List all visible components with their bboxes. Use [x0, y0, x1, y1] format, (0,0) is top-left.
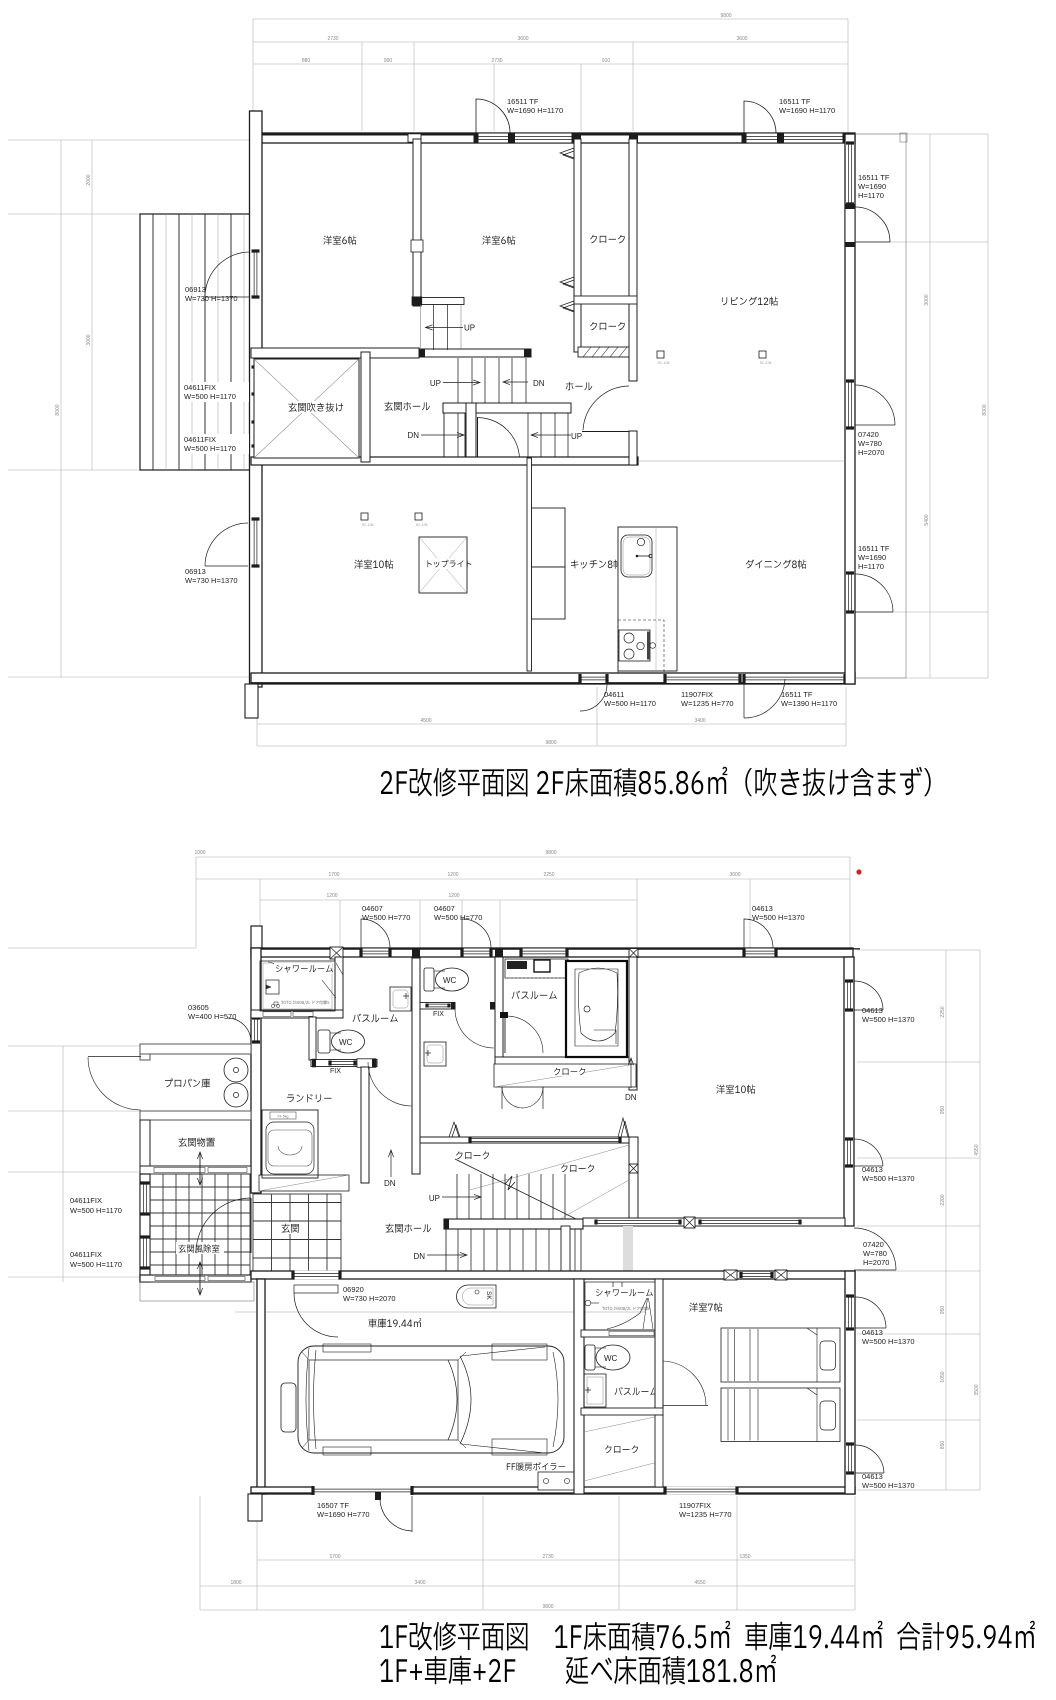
svg-text:04611FIX: 04611FIX	[70, 1196, 102, 1205]
svg-text:04613: 04613	[862, 1165, 883, 1174]
svg-text:06913: 06913	[185, 567, 206, 576]
svg-text:H=1170: H=1170	[858, 562, 884, 571]
svg-text:8000: 8000	[55, 404, 61, 415]
svg-text:03605: 03605	[188, 1003, 209, 1012]
svg-text:5C-105: 5C-105	[416, 523, 428, 527]
svg-text:16511 TF: 16511 TF	[858, 544, 890, 553]
svg-text:DN: DN	[625, 1093, 637, 1102]
svg-text:16511 TF: 16511 TF	[858, 173, 890, 182]
svg-text:SK: SK	[485, 1291, 492, 1300]
svg-text:5C-105: 5C-105	[362, 523, 374, 527]
svg-text:W=400 H=570: W=400 H=570	[188, 1012, 236, 1021]
svg-text:04613: 04613	[862, 1472, 883, 1481]
svg-text:9800: 9800	[542, 1604, 553, 1610]
svg-text:1800: 1800	[230, 1580, 241, 1586]
svg-text:WC: WC	[443, 976, 457, 985]
svg-text:1200: 1200	[447, 872, 458, 878]
svg-text:W=500 H=770: W=500 H=770	[434, 913, 482, 922]
svg-text:DN: DN	[413, 1252, 425, 1261]
svg-text:1350: 1350	[739, 1554, 750, 1560]
svg-text:W=1235 H=770: W=1235 H=770	[679, 1510, 732, 1519]
svg-text:W=500 H=1370: W=500 H=1370	[862, 1174, 915, 1183]
svg-text:3000: 3000	[86, 334, 92, 345]
svg-text:16507 TF: 16507 TF	[317, 1501, 349, 1510]
svg-text:07420: 07420	[858, 430, 879, 439]
svg-text:04611: 04611	[604, 690, 624, 699]
svg-text:3400: 3400	[414, 1580, 425, 1586]
svg-text:W=1690 H=1170: W=1690 H=1170	[507, 106, 563, 115]
svg-text:3600: 3600	[729, 872, 740, 878]
svg-text:9800: 9800	[545, 850, 556, 856]
svg-text:W=780: W=780	[858, 439, 882, 448]
svg-text:FF 5kg: FF 5kg	[278, 1115, 289, 1119]
svg-text:DN: DN	[407, 431, 419, 440]
svg-text:1200: 1200	[448, 893, 459, 899]
svg-text:04611FIX: 04611FIX	[184, 383, 216, 392]
svg-text:H=1170: H=1170	[858, 191, 884, 200]
svg-text:3600: 3600	[517, 36, 528, 42]
svg-text:UP: UP	[430, 379, 441, 388]
svg-text:W=500 H=1370: W=500 H=1370	[862, 1015, 915, 1024]
svg-text:W=1690 H=770: W=1690 H=770	[317, 1510, 370, 1519]
svg-text:W=500 H=770: W=500 H=770	[362, 913, 410, 922]
svg-text:880: 880	[302, 58, 311, 64]
svg-text:W=1390 H=1170: W=1390 H=1170	[781, 699, 837, 708]
svg-text:2730: 2730	[542, 1554, 553, 1560]
svg-text:8000: 8000	[982, 404, 988, 415]
svg-text:1200: 1200	[326, 893, 337, 899]
svg-text:2730: 2730	[491, 58, 502, 64]
svg-text:04607: 04607	[362, 904, 383, 913]
svg-text:5C-105: 5C-105	[658, 361, 670, 365]
svg-text:W=500 H=1370: W=500 H=1370	[752, 913, 805, 922]
svg-text:W=500 H=1170: W=500 H=1170	[70, 1260, 122, 1269]
svg-text:16511 TF: 16511 TF	[507, 97, 539, 106]
svg-text:W=780: W=780	[863, 1249, 887, 1258]
svg-text:11907FIX: 11907FIX	[679, 1501, 711, 1510]
svg-text:UP: UP	[429, 1194, 440, 1203]
svg-text:W=500 H=1170: W=500 H=1170	[604, 699, 656, 708]
svg-text:1700: 1700	[329, 1554, 340, 1560]
svg-text:W=1690 H=1170: W=1690 H=1170	[779, 106, 835, 115]
svg-text:5C-105: 5C-105	[760, 361, 772, 365]
svg-text:4550: 4550	[974, 1144, 980, 1155]
svg-text:UP: UP	[571, 432, 582, 441]
svg-text:W=500 H=1370: W=500 H=1370	[862, 1337, 915, 1346]
svg-text:W=730 H=1370: W=730 H=1370	[185, 294, 238, 303]
svg-text:2250: 2250	[543, 872, 554, 878]
svg-text:16511 TF: 16511 TF	[781, 690, 813, 699]
svg-text:W=500 H=1170: W=500 H=1170	[184, 392, 236, 401]
svg-text:04607: 04607	[434, 904, 455, 913]
svg-text:04611FIX: 04611FIX	[184, 435, 216, 444]
svg-text:950: 950	[940, 1306, 946, 1315]
svg-text:910: 910	[602, 58, 611, 64]
svg-text:04613: 04613	[862, 1006, 883, 1015]
svg-text:FIX: FIX	[330, 1068, 341, 1075]
svg-text:11907FIX: 11907FIX	[681, 690, 713, 699]
svg-text:1050: 1050	[940, 1371, 946, 1382]
svg-text:9800: 9800	[720, 13, 731, 19]
svg-text:850: 850	[940, 1441, 946, 1450]
svg-text:9800: 9800	[545, 740, 556, 746]
svg-text:W=1690: W=1690	[858, 182, 886, 191]
svg-text:W=1235 H=770: W=1235 H=770	[681, 699, 734, 708]
svg-text:07420: 07420	[863, 1240, 884, 1249]
svg-text:2250: 2250	[940, 1006, 946, 1017]
svg-text:950: 950	[940, 1106, 946, 1115]
svg-text:4500: 4500	[420, 718, 431, 724]
svg-text:W=730 H=1370: W=730 H=1370	[185, 576, 238, 585]
svg-text:04613: 04613	[862, 1328, 883, 1337]
svg-text:1700: 1700	[328, 872, 339, 878]
svg-text:4550: 4550	[694, 1580, 705, 1586]
svg-text:W=500 H=1370: W=500 H=1370	[862, 1481, 915, 1490]
svg-text:06913: 06913	[185, 285, 206, 294]
svg-text:3400: 3400	[694, 718, 705, 724]
svg-text:W=500 H=1170: W=500 H=1170	[70, 1206, 122, 1215]
svg-text:W=500 H=1170: W=500 H=1170	[184, 444, 236, 453]
svg-text:DN: DN	[533, 379, 545, 388]
svg-text:W=730 H=2070: W=730 H=2070	[343, 1294, 396, 1303]
svg-text:2000: 2000	[86, 174, 92, 185]
svg-text:04613: 04613	[752, 904, 773, 913]
svg-text:2200: 2200	[940, 1194, 946, 1205]
svg-text:3500: 3500	[974, 1384, 980, 1395]
svg-text:5400: 5400	[924, 514, 930, 525]
svg-text:DN: DN	[384, 1179, 396, 1188]
svg-text:H=2070: H=2070	[863, 1258, 889, 1267]
svg-text:3600: 3600	[736, 36, 747, 42]
svg-text:WC: WC	[604, 1354, 618, 1363]
svg-text:FIX: FIX	[433, 1011, 444, 1018]
svg-text:06920: 06920	[343, 1285, 364, 1294]
svg-text:16511 TF: 16511 TF	[779, 97, 811, 106]
svg-text:WC: WC	[339, 1038, 353, 1047]
svg-text:UP: UP	[464, 324, 475, 333]
svg-text:2730: 2730	[327, 36, 338, 42]
svg-text:1000: 1000	[194, 850, 205, 856]
svg-text:04611FIX: 04611FIX	[70, 1250, 102, 1259]
svg-text:H=2070: H=2070	[858, 448, 884, 457]
svg-text:W=1690: W=1690	[858, 553, 886, 562]
svg-text:900: 900	[384, 58, 393, 64]
svg-text:3000: 3000	[924, 294, 930, 305]
